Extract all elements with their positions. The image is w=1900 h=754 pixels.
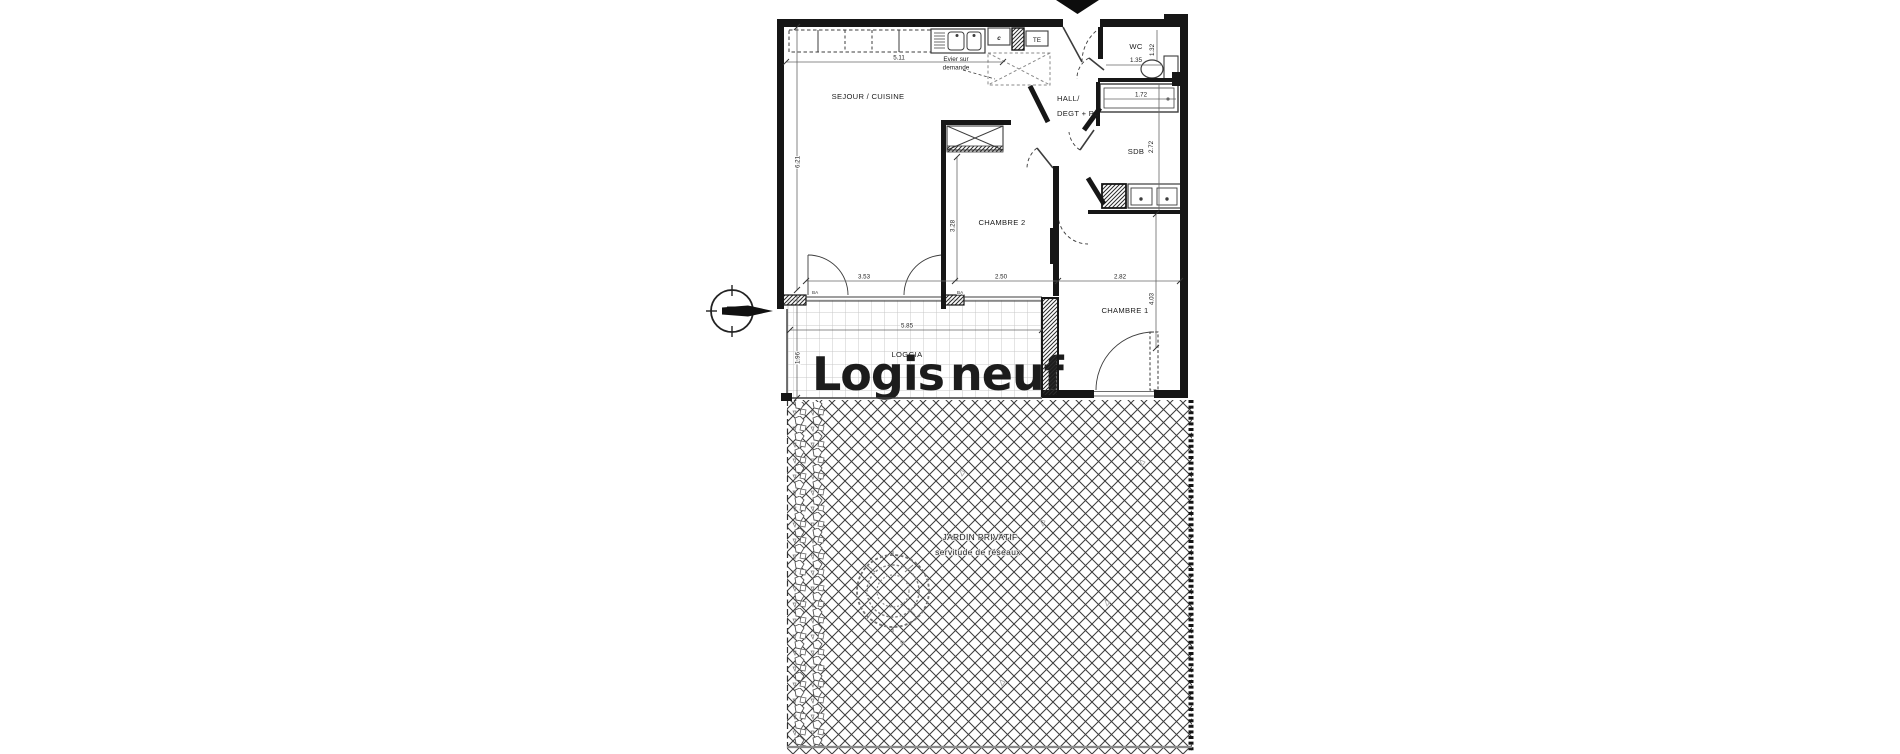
garden-shrub-border (789, 402, 825, 748)
room-label-wc: WC (1129, 42, 1142, 51)
garden: JARDIN PRIVATIF servitude de réseaux (787, 400, 1192, 754)
label-te: TE (1033, 37, 1041, 44)
dim-wc-depth: 1.32 (1149, 43, 1156, 56)
dim-sdb-height: 2.72 (1148, 140, 1155, 153)
dim-chambre2-height: 3.28 (950, 219, 957, 232)
label-boiler-c: c (997, 35, 1001, 42)
entrance-arrow-icon (1056, 0, 1099, 14)
dim-sejour-bay: 3.53 (858, 274, 871, 281)
room-label-sejour-cuisine: SEJOUR / CUISINE (832, 92, 905, 101)
room-label-hall-line2: DEGT + PL (1057, 109, 1099, 118)
floor-plan-page: JARDIN PRIVATIF servitude de réseaux Log… (0, 0, 1900, 754)
dim-chambre1-width: 2.82 (1114, 274, 1127, 281)
garden-label-line1: JARDIN PRIVATIF (942, 532, 1017, 542)
room-label-loggia: LOGGIA (892, 350, 924, 359)
dim-loggia-width: 5.85 (901, 323, 914, 330)
garden-hatch (787, 400, 1192, 754)
dim-kitchen-width: 5.11 (893, 55, 905, 62)
note-evier-line1: Evier sur (943, 56, 969, 63)
dim-sejour-height: 6.21 (795, 155, 802, 168)
garden-label-line2: servitude de réseaux (935, 547, 1021, 557)
dim-chambre2-width: 2.50 (995, 274, 1008, 281)
room-label-chambre1: CHAMBRE 1 (1101, 306, 1148, 315)
watermark: Logis neuf (812, 347, 1065, 401)
room-label-sdb: SDB (1128, 147, 1145, 156)
room-label-hall-line1: HALL/ (1057, 94, 1080, 103)
entrance-duct (1012, 28, 1024, 50)
dim-chambre1-height: 4.03 (1149, 292, 1156, 305)
north-compass-icon (706, 285, 773, 337)
label-ba-right: BA (957, 290, 964, 295)
dim-loggia-depth: 1.96 (795, 351, 802, 364)
floor-plan: JARDIN PRIVATIF servitude de réseaux Log… (0, 0, 1900, 754)
note-evier-line2: demande (943, 65, 970, 72)
watermark-logis: Logis (812, 347, 944, 401)
label-ba-left: BA (812, 290, 819, 295)
dim-bath-length: 1.72 (1135, 92, 1148, 99)
room-label-chambre2: CHAMBRE 2 (978, 218, 1025, 227)
sdb-duct (1102, 184, 1126, 208)
dim-wc-width: 1.35 (1130, 57, 1143, 64)
